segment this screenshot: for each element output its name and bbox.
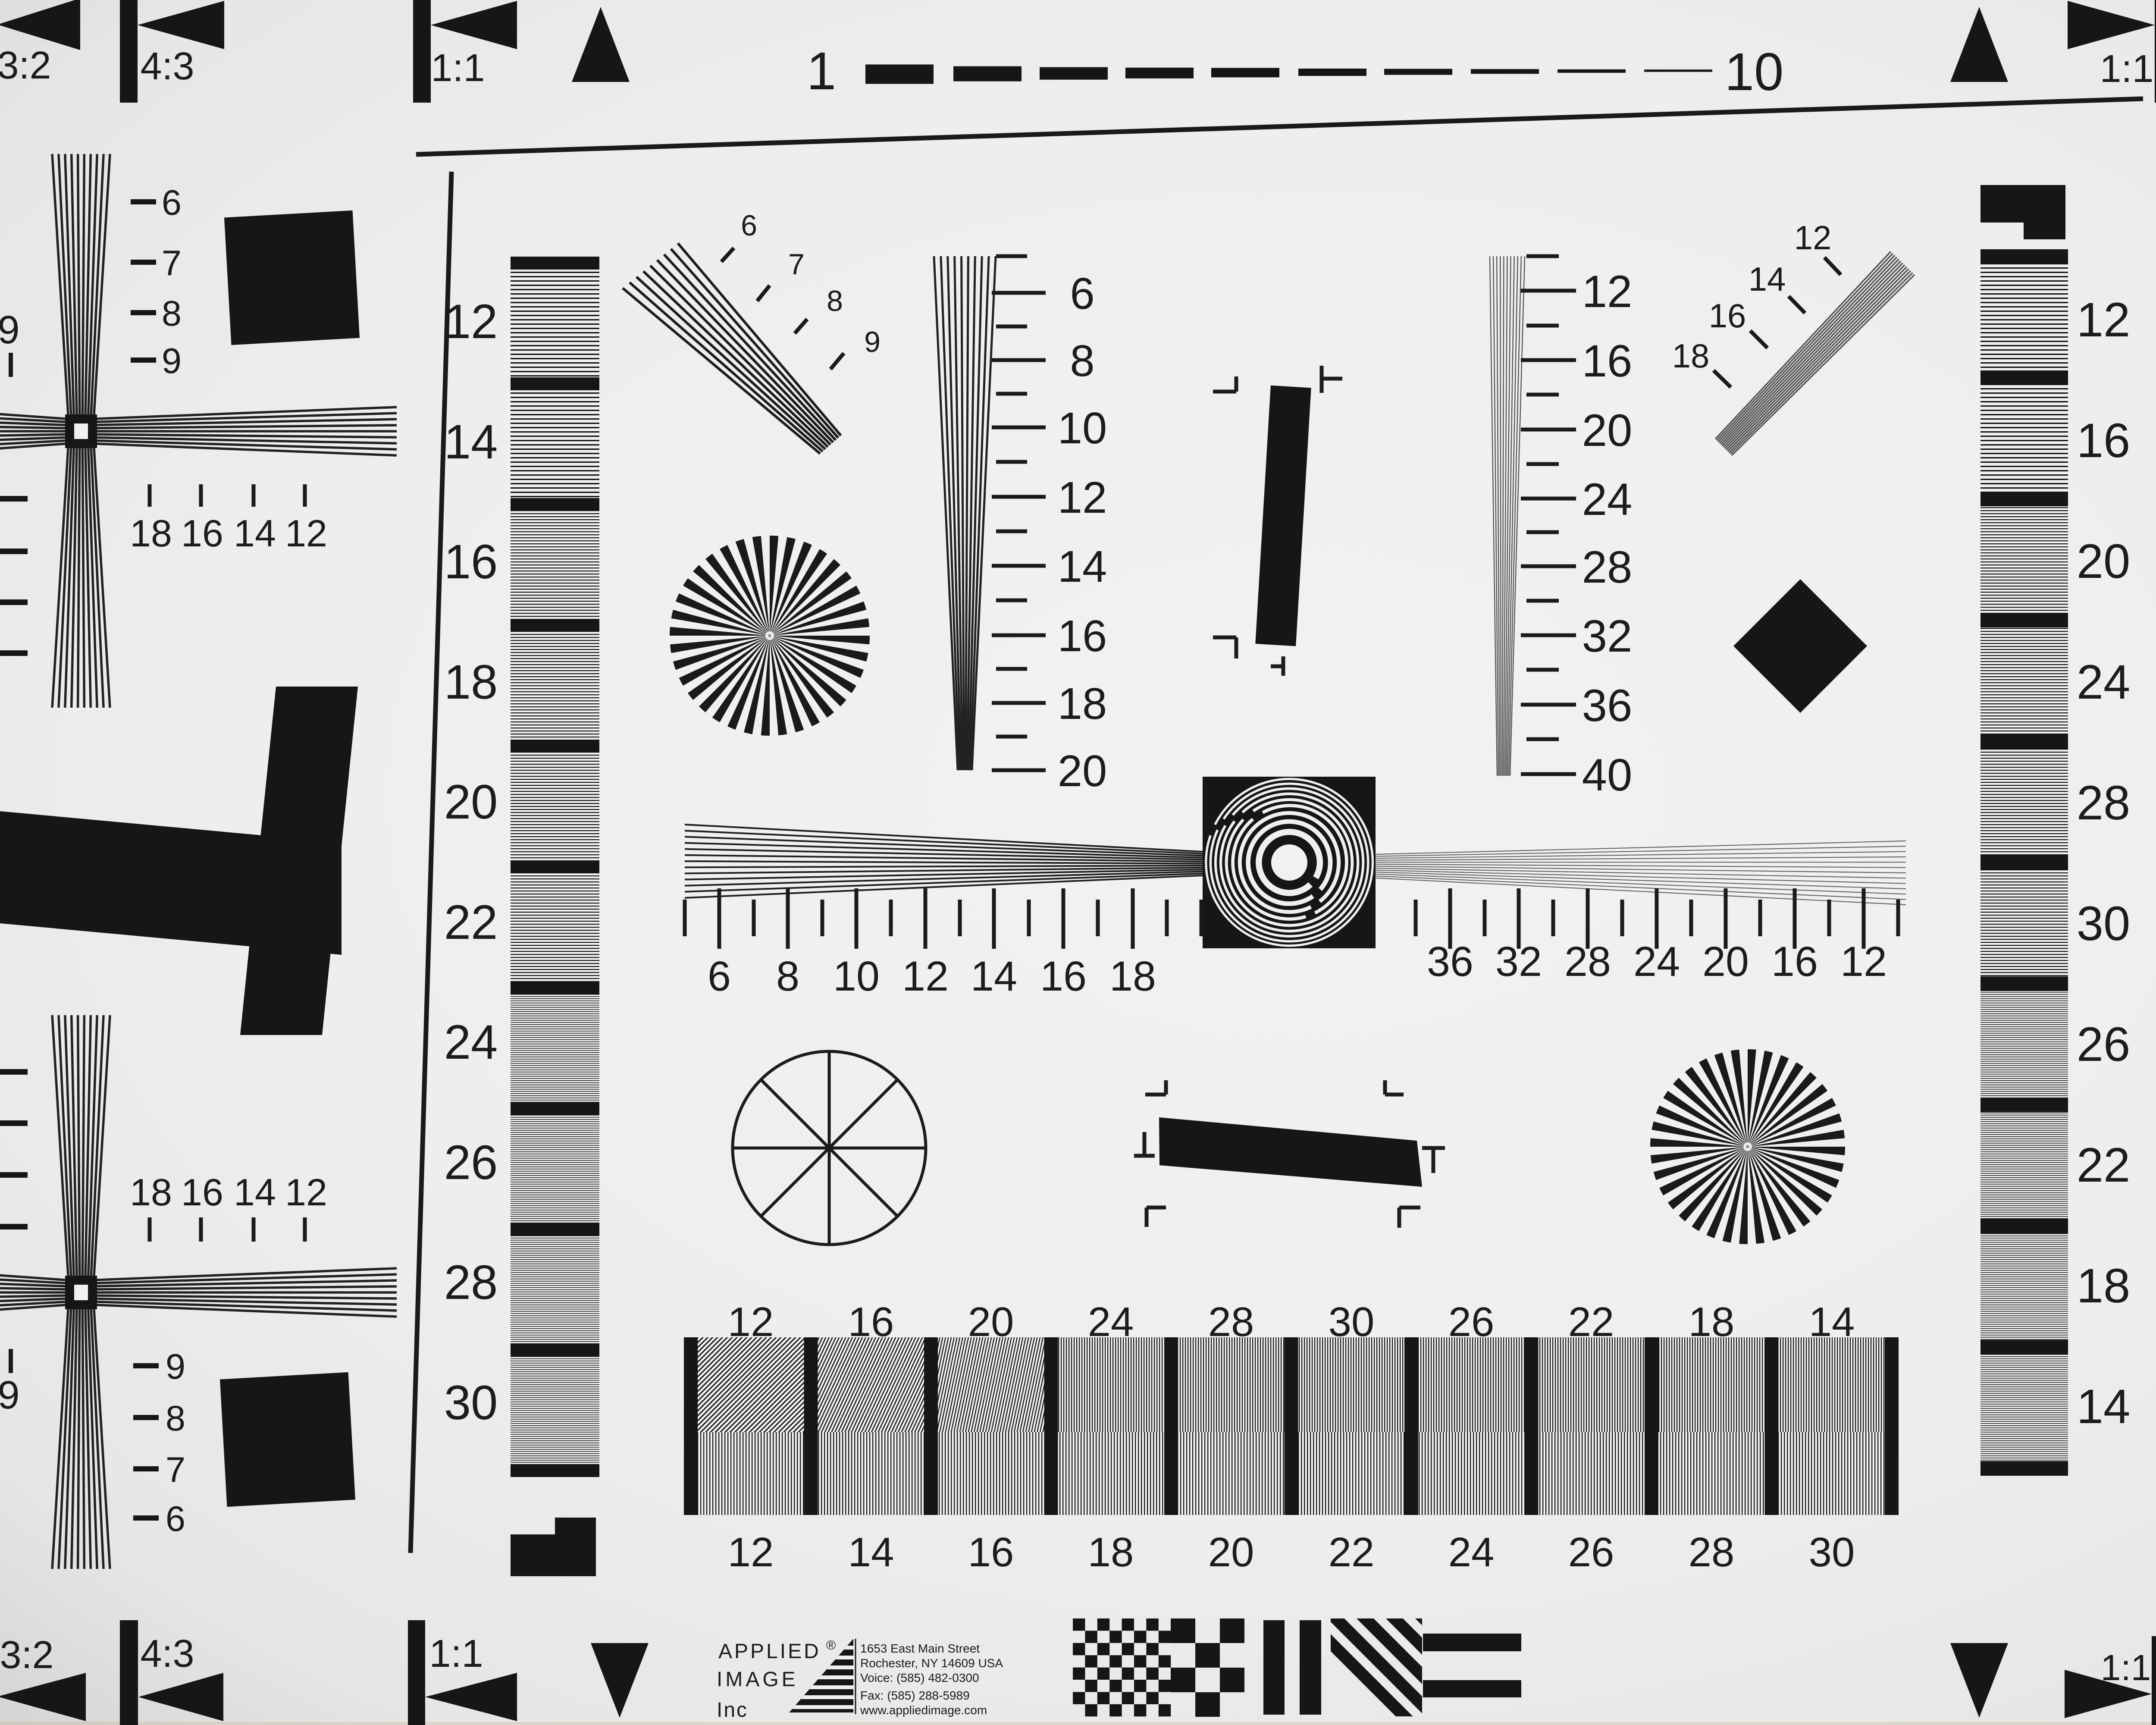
svg-text:14: 14	[1809, 1299, 1855, 1345]
svg-text:16: 16	[444, 535, 498, 589]
svg-text:16: 16	[1709, 297, 1746, 335]
svg-text:28: 28	[1689, 1529, 1735, 1575]
svg-text:24: 24	[1582, 474, 1633, 525]
svg-text:3:2: 3:2	[0, 44, 51, 87]
svg-text:28: 28	[444, 1255, 498, 1309]
svg-text:6: 6	[1070, 269, 1094, 318]
svg-text:14: 14	[2077, 1380, 2131, 1433]
svg-text:24: 24	[1448, 1529, 1495, 1575]
svg-text:22: 22	[444, 895, 498, 949]
svg-text:12: 12	[1794, 219, 1832, 257]
svg-text:8: 8	[1070, 336, 1094, 386]
svg-text:30: 30	[444, 1376, 498, 1430]
svg-text:12: 12	[285, 512, 327, 555]
svg-text:12: 12	[1582, 267, 1633, 317]
svg-text:9: 9	[166, 1346, 185, 1386]
svg-text:16: 16	[181, 512, 223, 555]
svg-text:20: 20	[1208, 1529, 1254, 1575]
svg-text:6: 6	[166, 1499, 185, 1539]
svg-text:20: 20	[2077, 534, 2131, 588]
svg-text:20: 20	[1582, 405, 1633, 456]
svg-text:28: 28	[1208, 1299, 1254, 1345]
svg-text:26: 26	[1568, 1529, 1614, 1575]
svg-text:APPLIED: APPLIED	[718, 1640, 821, 1663]
svg-text:20: 20	[968, 1299, 1014, 1345]
svg-text:6: 6	[741, 209, 757, 242]
svg-text:36: 36	[1427, 938, 1473, 985]
svg-text:1: 1	[807, 42, 836, 101]
svg-text:9: 9	[162, 341, 182, 381]
svg-text:www.appliedimage.com: www.appliedimage.com	[860, 1703, 987, 1717]
svg-text:12: 12	[728, 1299, 774, 1345]
svg-text:18: 18	[1088, 1529, 1134, 1575]
svg-text:18: 18	[1672, 337, 1710, 375]
svg-text:14: 14	[1058, 542, 1107, 591]
svg-text:32: 32	[1495, 938, 1542, 985]
svg-text:28: 28	[1564, 938, 1611, 985]
svg-text:12: 12	[902, 953, 949, 1000]
svg-text:16: 16	[2077, 414, 2131, 467]
svg-text:18: 18	[1058, 679, 1107, 728]
svg-text:10: 10	[833, 953, 880, 1000]
svg-text:12: 12	[1058, 473, 1107, 522]
svg-text:Inc: Inc	[717, 1699, 748, 1722]
svg-text:4:3: 4:3	[140, 45, 194, 88]
svg-text:1653 East Main Street: 1653 East Main Street	[860, 1642, 980, 1655]
svg-text:20: 20	[1058, 746, 1107, 796]
svg-text:6: 6	[708, 953, 731, 1000]
svg-text:10: 10	[1058, 403, 1107, 453]
svg-text:Fax: (585) 288-5989: Fax: (585) 288-5989	[860, 1689, 970, 1702]
svg-text:16: 16	[1058, 611, 1107, 661]
svg-text:Voice: (585) 482-0300: Voice: (585) 482-0300	[860, 1671, 979, 1684]
svg-text:8: 8	[166, 1398, 185, 1438]
svg-text:12: 12	[1840, 938, 1887, 985]
svg-text:20: 20	[444, 775, 498, 829]
svg-text:8: 8	[776, 953, 799, 1000]
svg-text:22: 22	[1329, 1529, 1375, 1575]
svg-text:14: 14	[234, 1171, 276, 1214]
svg-text:14: 14	[848, 1529, 894, 1575]
svg-text:9: 9	[0, 308, 20, 352]
svg-text:14: 14	[234, 512, 276, 555]
svg-text:18: 18	[1689, 1299, 1735, 1345]
svg-text:28: 28	[2077, 776, 2131, 830]
svg-text:14: 14	[971, 953, 1017, 1000]
svg-text:8: 8	[162, 293, 182, 333]
svg-text:14: 14	[444, 415, 498, 469]
svg-text:16: 16	[1040, 953, 1087, 1000]
svg-text:32: 32	[1582, 611, 1633, 662]
svg-text:18: 18	[444, 655, 498, 709]
svg-text:18: 18	[130, 512, 172, 555]
svg-text:28: 28	[1582, 542, 1633, 593]
svg-text:12: 12	[285, 1171, 327, 1214]
svg-text:1:1: 1:1	[429, 1632, 483, 1675]
svg-text:16: 16	[181, 1171, 223, 1214]
svg-text:IMAGE: IMAGE	[717, 1668, 799, 1691]
svg-text:24: 24	[1088, 1299, 1134, 1345]
svg-text:9: 9	[864, 326, 881, 358]
svg-text:7: 7	[166, 1449, 185, 1490]
svg-text:16: 16	[848, 1299, 894, 1345]
svg-text:9: 9	[0, 1373, 20, 1417]
svg-text:24: 24	[2077, 655, 2131, 709]
svg-text:24: 24	[1633, 938, 1680, 985]
svg-text:20: 20	[1702, 938, 1749, 985]
svg-text:26: 26	[444, 1135, 498, 1189]
svg-text:22: 22	[2077, 1138, 2131, 1192]
svg-text:16: 16	[1771, 938, 1818, 985]
svg-text:36: 36	[1582, 681, 1633, 731]
svg-text:30: 30	[1809, 1529, 1855, 1575]
svg-text:24: 24	[444, 1015, 498, 1069]
svg-text:18: 18	[1109, 953, 1156, 1000]
svg-text:26: 26	[1448, 1299, 1495, 1345]
svg-text:1:1: 1:1	[2100, 47, 2153, 91]
svg-text:18: 18	[130, 1171, 172, 1214]
svg-text:18: 18	[2077, 1259, 2131, 1313]
svg-text:16: 16	[968, 1529, 1014, 1575]
svg-text:6: 6	[162, 182, 182, 223]
svg-text:12: 12	[2077, 293, 2131, 347]
svg-text:1:1: 1:1	[2101, 1647, 2151, 1688]
svg-text:22: 22	[1568, 1299, 1614, 1345]
svg-text:30: 30	[1329, 1299, 1375, 1345]
svg-text:40: 40	[1582, 750, 1633, 800]
svg-text:®: ®	[826, 1638, 836, 1653]
svg-text:30: 30	[2077, 897, 2131, 950]
svg-text:12: 12	[444, 295, 498, 348]
svg-text:16: 16	[1582, 336, 1633, 386]
svg-text:12: 12	[728, 1529, 774, 1575]
svg-text:1:1: 1:1	[431, 47, 485, 90]
svg-text:4:3: 4:3	[140, 1632, 194, 1675]
svg-text:7: 7	[788, 248, 805, 281]
svg-text:14: 14	[1749, 260, 1786, 298]
svg-text:10: 10	[1725, 43, 1784, 102]
svg-text:8: 8	[827, 285, 843, 317]
svg-text:Rochester, NY 14609 USA: Rochester, NY 14609 USA	[860, 1656, 1003, 1670]
svg-text:7: 7	[162, 243, 182, 283]
svg-text:3:2: 3:2	[0, 1634, 54, 1677]
svg-text:26: 26	[2077, 1017, 2131, 1071]
